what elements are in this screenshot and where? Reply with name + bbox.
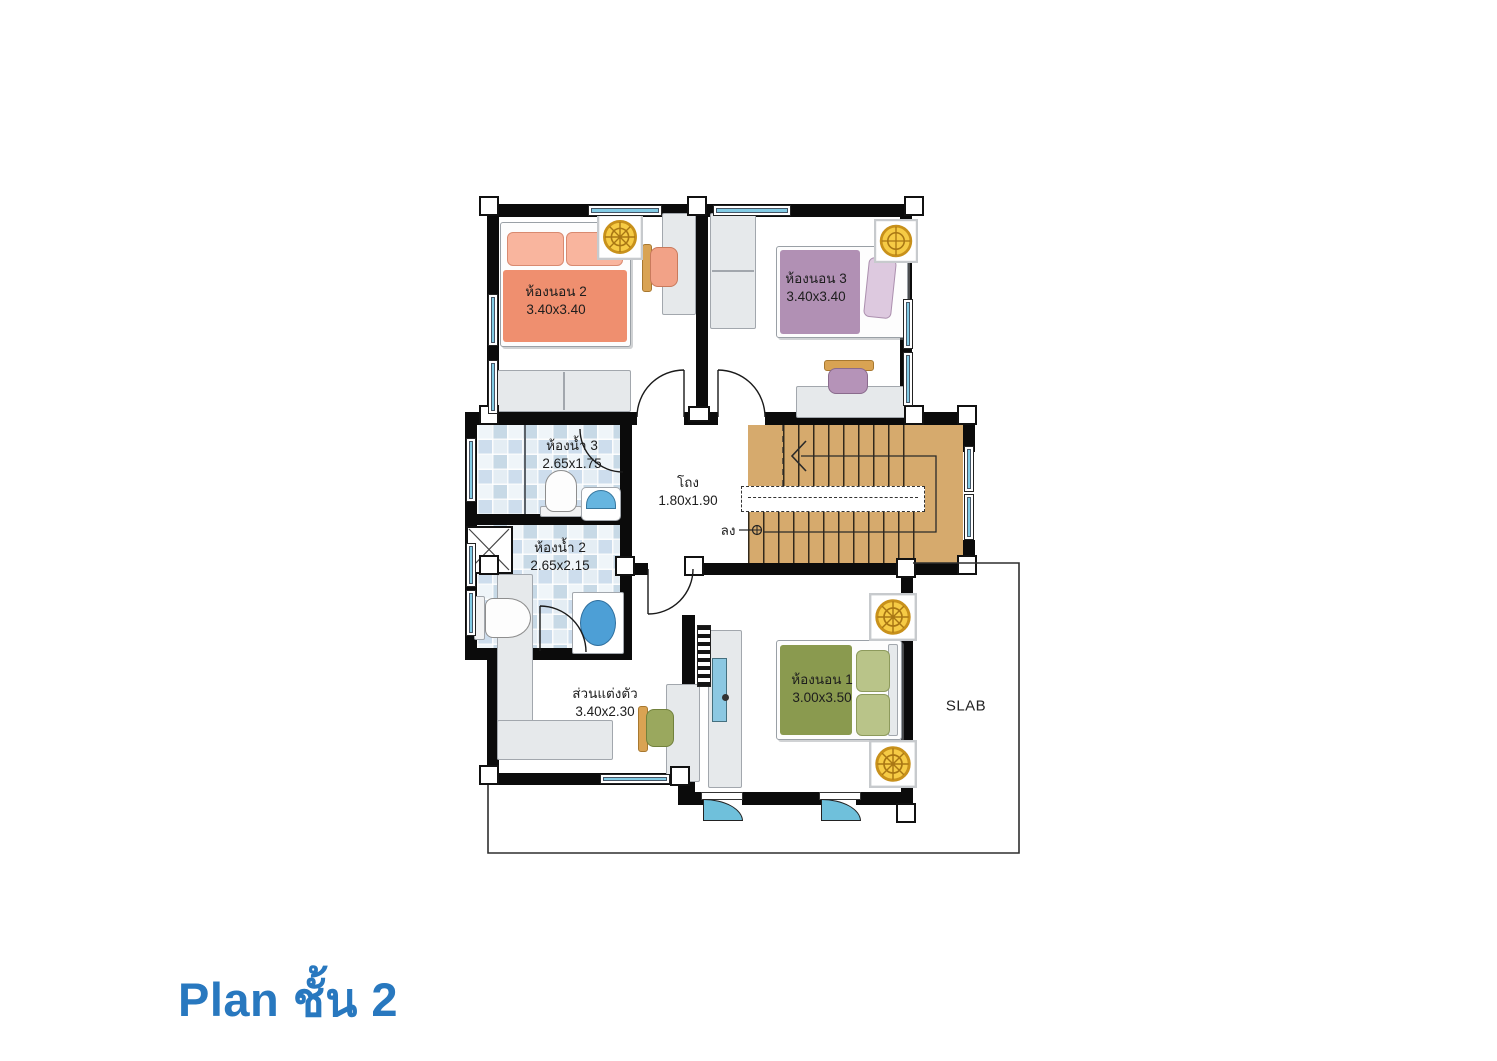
stair-treads-upper [783,425,915,486]
column [615,556,635,576]
column [957,405,977,425]
room-name: ห้องนอน 2 [525,283,586,301]
window [466,590,476,636]
column [896,803,916,823]
toilet-bowl [485,598,531,638]
room-name: ห้องน้ำ 2 [530,539,589,557]
column [479,196,499,216]
column [904,196,924,216]
room-dims: 2.65x2.15 [530,557,589,575]
room-dims: 3.40x2.30 [572,703,637,721]
room-dims: 3.00x3.50 [791,689,852,707]
stair-treads-lower [748,508,916,563]
room-label-bedroom3: ห้องนอน 3 3.40x3.40 [785,270,846,306]
pillow [507,232,564,266]
wall [742,792,824,805]
pillow [856,650,890,692]
ceiling-lamp-icon [869,593,917,641]
room-name: ห้องนอน 3 [785,270,846,288]
column [904,405,924,425]
column [957,555,977,575]
chair-seat [646,709,674,747]
window [466,543,476,587]
window [964,446,974,492]
pillow [856,694,890,736]
stair-down-label: ลง [721,522,736,540]
open-window-leaf [703,799,743,821]
chair-seat [828,368,868,394]
room-dims: 3.40x3.40 [525,301,586,319]
window [588,205,662,216]
wardrobe-divider [712,270,754,272]
column [670,766,690,786]
ceiling-lamp-icon [869,740,917,788]
slab-label: SLAB [946,698,986,715]
column [479,555,499,575]
room-label-bath2: ห้องน้ำ 2 2.65x2.15 [530,539,589,575]
room-dims: 2.65x1.75 [542,455,601,473]
sink-basin [580,600,616,646]
tv-screen [712,658,727,722]
page-title: Plan ชั้น 2 [178,962,398,1037]
room-name: ห้องน้ำ 3 [542,437,601,455]
wall [696,215,708,413]
wardrobe-divider [563,372,565,410]
room-label-bedroom1: ห้องนอน 1 3.00x3.50 [791,671,852,707]
room-label-bedroom2: ห้องนอน 2 3.40x3.40 [525,283,586,319]
door-arc [637,370,684,417]
room-name: ห้องนอน 1 [791,671,852,689]
window [903,352,913,406]
room-dims: 1.80x1.90 [658,492,717,510]
ceiling-lamp-icon [874,219,918,263]
room-label-bath3: ห้องน้ำ 3 2.65x1.75 [542,437,601,473]
closet-run-horizontal [497,720,613,760]
window [903,299,913,349]
column [688,406,710,422]
stair-handrail [741,486,925,512]
window [466,438,476,502]
room-name: ส่วนแต่งตัว [572,685,637,703]
room-label-dressing: ส่วนแต่งตัว 3.40x2.30 [572,685,637,721]
door-arc [718,370,765,417]
window [713,205,791,216]
open-window-leaf [821,799,861,821]
room-name: โถง [658,474,717,492]
wall [693,563,975,575]
room-label-hall: โถง 1.80x1.90 [658,474,717,510]
column [479,765,499,785]
chair-seat [650,247,678,287]
ceiling-lamp-icon [597,214,643,260]
window [488,360,498,414]
window [964,494,974,540]
column [684,556,704,576]
bathroom3-partition-line [524,425,526,514]
tv-mount-knob [722,694,729,701]
column [687,196,707,216]
room-dims: 3.40x3.40 [785,288,846,306]
tv-slat-wall [697,625,711,687]
down-text: ลง [721,522,736,540]
floor-plan-page: ห้องนอน 2 3.40x3.40 ห้องนอน 3 3.40x3.40 … [0,0,1497,1061]
column [896,558,916,578]
toilet-bowl [545,470,577,512]
window [600,774,670,784]
window [488,294,498,346]
